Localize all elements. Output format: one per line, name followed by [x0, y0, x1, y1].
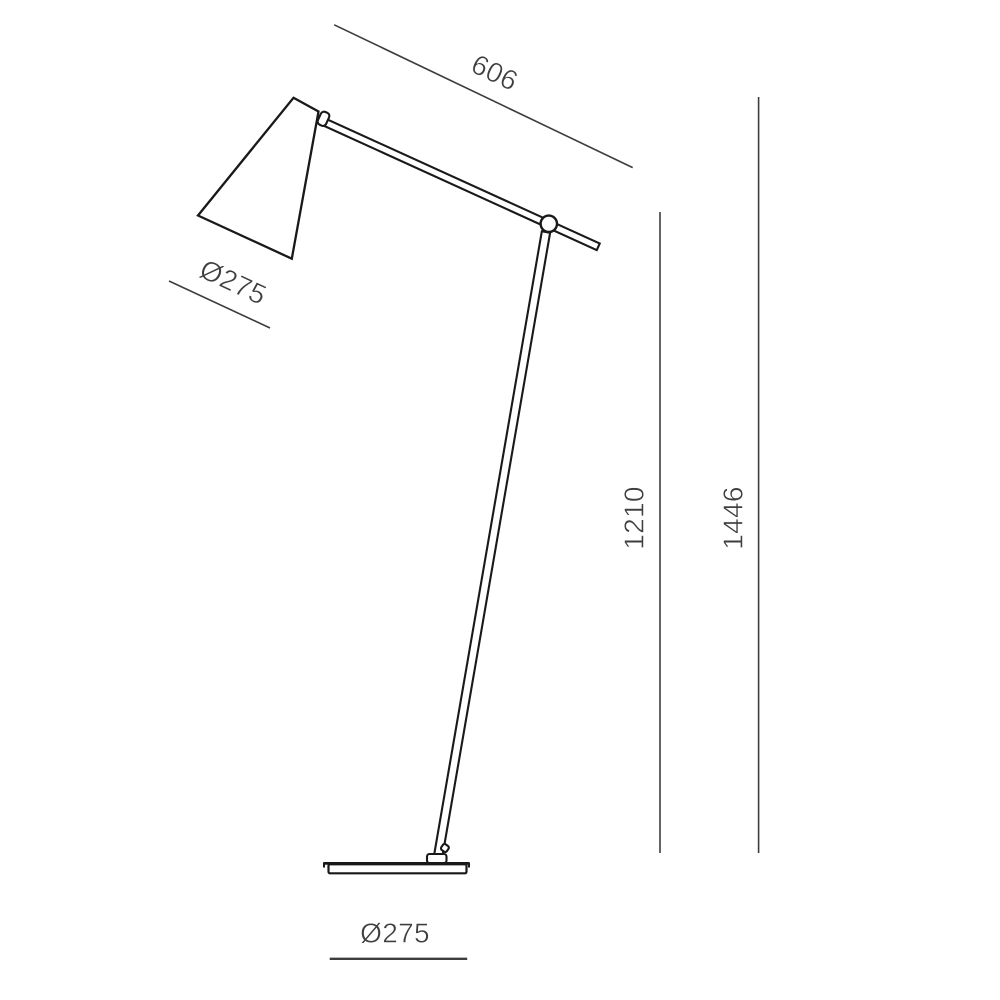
svg-text:1210: 1210 [618, 486, 649, 550]
svg-text:1446: 1446 [717, 486, 748, 550]
svg-text:Ø275: Ø275 [360, 917, 430, 948]
